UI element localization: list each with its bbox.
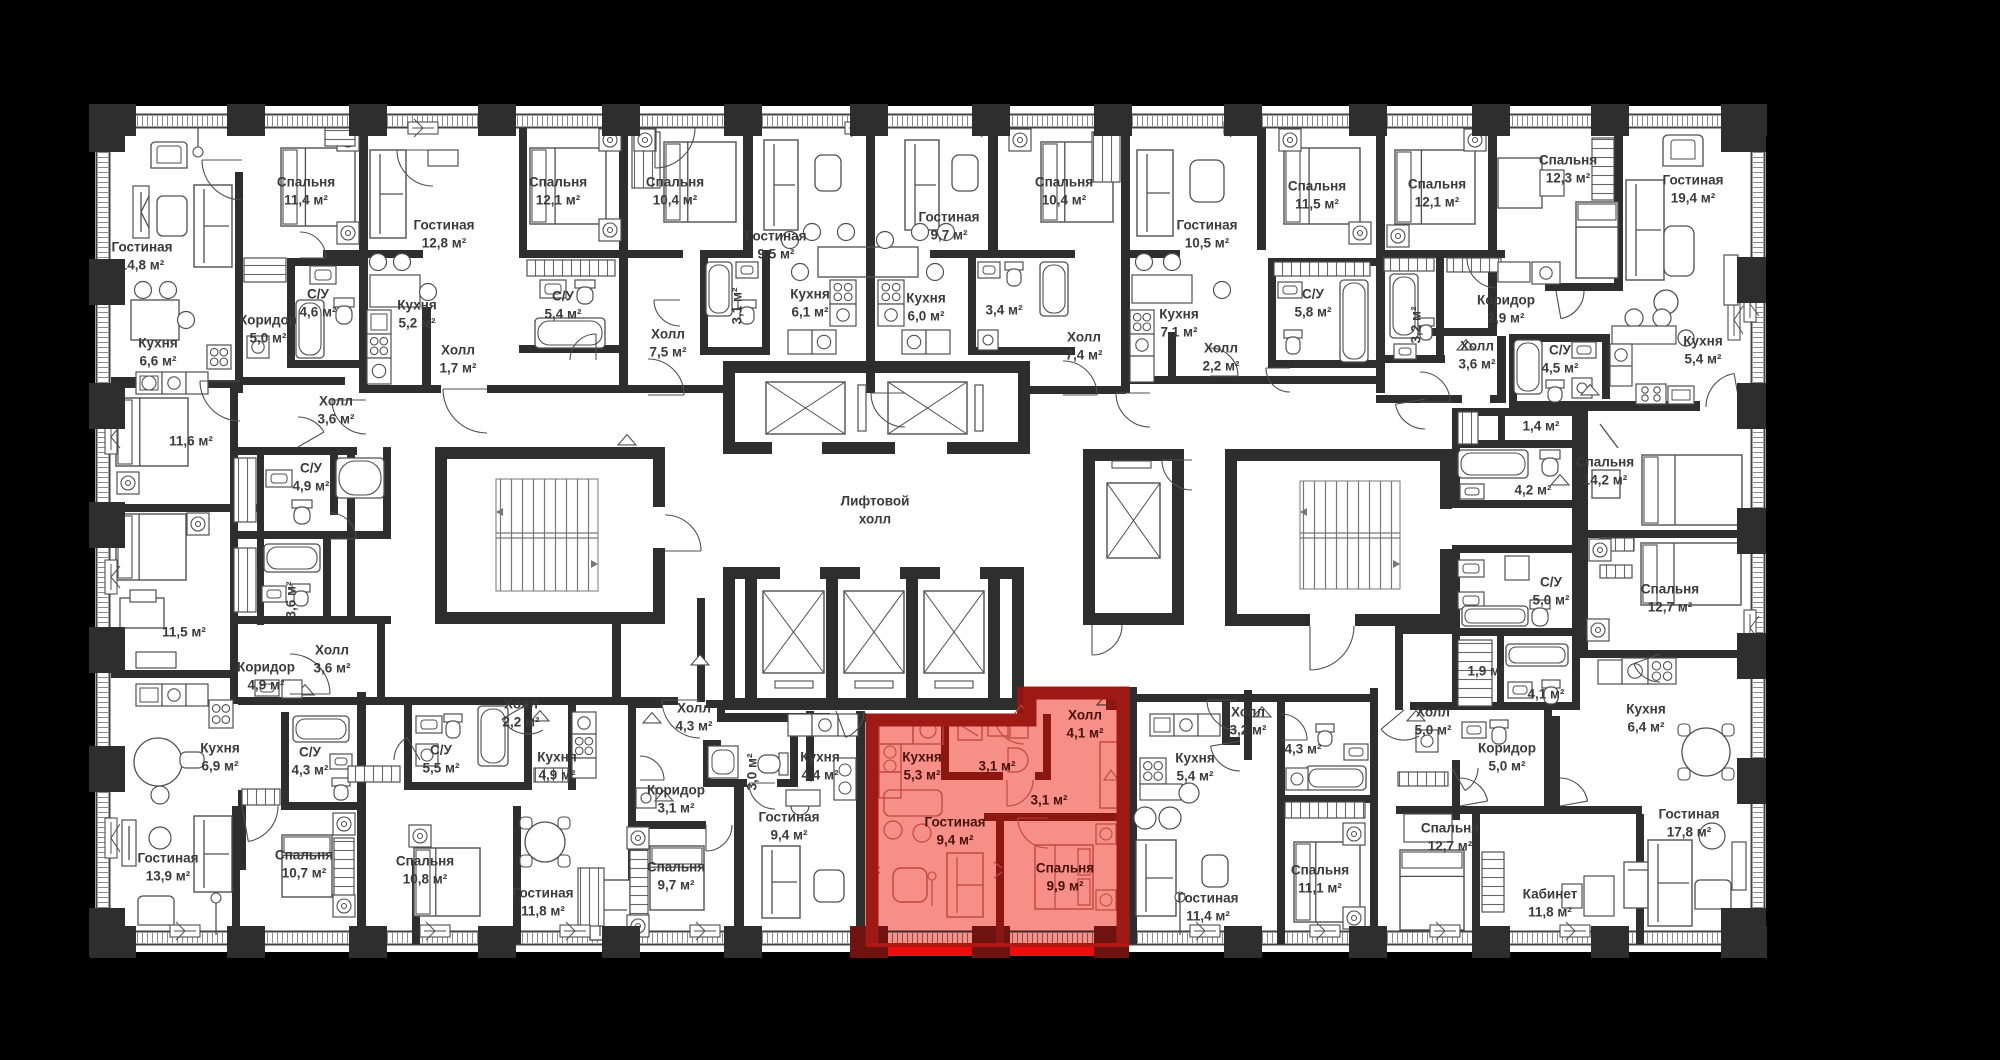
svg-text:11,8 м²: 11,8 м² (1528, 905, 1572, 920)
svg-text:Спальня: Спальня (1036, 861, 1094, 876)
svg-text:Гостиная: Гостиная (512, 886, 573, 901)
svg-text:13,9 м²: 13,9 м² (146, 869, 191, 884)
svg-text:Холл: Холл (315, 643, 349, 658)
svg-text:Холл: Холл (1067, 330, 1101, 345)
svg-text:Холл: Холл (1068, 708, 1102, 723)
svg-text:Коридор: Коридор (1478, 741, 1536, 756)
svg-text:5,4 м²: 5,4 м² (545, 307, 583, 322)
svg-text:3,2 м²: 3,2 м² (1409, 306, 1424, 344)
svg-text:14,2 м²: 14,2 м² (1583, 473, 1628, 488)
svg-text:С/У: С/У (552, 289, 575, 304)
svg-text:12,7 м²: 12,7 м² (1428, 839, 1473, 854)
svg-text:4,9 м²: 4,9 м² (539, 768, 577, 783)
svg-text:3,1 м²: 3,1 м² (979, 759, 1017, 774)
svg-text:Кухня: Кухня (397, 298, 436, 313)
svg-text:9,4 м²: 9,4 м² (771, 828, 809, 843)
svg-text:Спальня: Спальня (1576, 455, 1634, 470)
svg-text:Спальня: Спальня (275, 848, 333, 863)
svg-text:Коридор: Коридор (647, 783, 705, 798)
svg-text:Спальня: Спальня (1291, 863, 1349, 878)
svg-text:1,7 м²: 1,7 м² (440, 361, 478, 376)
svg-text:С/У: С/У (1302, 287, 1325, 302)
svg-text:Кухня: Кухня (902, 750, 941, 765)
svg-text:С/У: С/У (299, 745, 322, 760)
svg-text:Холл: Холл (441, 343, 475, 358)
svg-text:4,1 м²: 4,1 м² (1067, 726, 1105, 741)
svg-text:Кухня: Кухня (790, 287, 829, 302)
svg-text:Гостиная: Гостиная (918, 210, 979, 225)
svg-text:4,5 м²: 4,5 м² (1542, 361, 1580, 376)
svg-text:3,6 м²: 3,6 м² (318, 412, 356, 427)
svg-text:5,2 м²: 5,2 м² (399, 316, 437, 331)
svg-text:4,2 м²: 4,2 м² (1515, 483, 1553, 498)
svg-text:9,9 м²: 9,9 м² (1047, 879, 1085, 894)
svg-text:Гостиная: Гостиная (745, 229, 806, 244)
svg-text:5,0 м²: 5,0 м² (1489, 759, 1527, 774)
svg-text:4,9 м²: 4,9 м² (248, 678, 286, 693)
svg-text:С/У: С/У (1540, 575, 1563, 590)
svg-text:12,1 м²: 12,1 м² (1415, 195, 1460, 210)
svg-text:Кухня: Кухня (138, 336, 177, 351)
svg-text:7,5 м²: 7,5 м² (650, 345, 688, 360)
svg-text:Холл: Холл (504, 697, 538, 712)
svg-text:9,7 м²: 9,7 м² (658, 878, 696, 893)
svg-text:1,4 м²: 1,4 м² (1523, 419, 1561, 434)
svg-text:6,1 м²: 6,1 м² (792, 305, 830, 320)
svg-text:С/У: С/У (300, 461, 323, 476)
svg-text:Спальня: Спальня (647, 860, 705, 875)
svg-text:3,1 м²: 3,1 м² (658, 801, 696, 816)
svg-text:5,4 м²: 5,4 м² (1685, 352, 1723, 367)
svg-text:Гостиная: Гостиная (924, 815, 985, 830)
svg-text:3,2 м²: 3,2 м² (1230, 723, 1268, 738)
svg-text:С/У: С/У (430, 743, 453, 758)
svg-text:5,8 м²: 5,8 м² (1295, 305, 1333, 320)
svg-text:5,0 м²: 5,0 м² (1415, 723, 1453, 738)
svg-text:Спальня: Спальня (1641, 582, 1699, 597)
svg-text:Холл: Холл (1460, 339, 1494, 354)
svg-text:5,4 м²: 5,4 м² (1177, 769, 1215, 784)
svg-text:4,4 м²: 4,4 м² (802, 768, 840, 783)
svg-text:3,0 м²: 3,0 м² (745, 753, 760, 791)
svg-text:Спальня: Спальня (529, 175, 587, 190)
svg-text:Кухня: Кухня (537, 750, 576, 765)
svg-text:4,3 м²: 4,3 м² (1285, 742, 1323, 757)
svg-text:6,6 м²: 6,6 м² (140, 354, 178, 369)
svg-text:6,9 м²: 6,9 м² (202, 759, 240, 774)
svg-text:4,1 м²: 4,1 м² (1528, 687, 1566, 702)
svg-text:Гостиная: Гостиная (137, 851, 198, 866)
svg-text:4,6 м²: 4,6 м² (300, 305, 338, 320)
svg-text:3,6 м²: 3,6 м² (1459, 357, 1497, 372)
svg-text:12,8 м²: 12,8 м² (422, 236, 467, 251)
svg-text:5,3 м²: 5,3 м² (904, 768, 942, 783)
svg-text:11,8 м²: 11,8 м² (521, 904, 565, 919)
svg-text:10,8 м²: 10,8 м² (403, 872, 448, 887)
svg-text:Кухня: Кухня (906, 291, 945, 306)
svg-text:5,5 м²: 5,5 м² (423, 761, 461, 776)
svg-text:10,4 м²: 10,4 м² (653, 193, 698, 208)
svg-text:Кухня: Кухня (1683, 334, 1722, 349)
svg-text:Гостиная: Гостиная (1176, 218, 1237, 233)
svg-text:2,2 м²: 2,2 м² (503, 715, 541, 730)
svg-text:4,9 м²: 4,9 м² (293, 479, 331, 494)
svg-text:Спальня: Спальня (1421, 821, 1479, 836)
svg-text:Холл: Холл (1416, 705, 1450, 720)
svg-text:Кухня: Кухня (800, 750, 839, 765)
svg-text:Гостиная: Гостиная (1662, 173, 1723, 188)
svg-text:Гостиная: Гостиная (758, 810, 819, 825)
svg-text:9,4 м²: 9,4 м² (937, 833, 975, 848)
svg-text:11,5 м²: 11,5 м² (162, 625, 206, 640)
svg-text:12,7 м²: 12,7 м² (1648, 600, 1693, 615)
svg-text:Холл: Холл (1231, 705, 1265, 720)
svg-text:3,1 м²: 3,1 м² (730, 287, 745, 325)
svg-text:Спальня: Спальня (1288, 179, 1346, 194)
svg-text:14,8 м²: 14,8 м² (120, 258, 165, 273)
svg-text:11,4 м²: 11,4 м² (284, 193, 328, 208)
svg-text:1,9 м²: 1,9 м² (1468, 664, 1506, 679)
svg-text:12,3 м²: 12,3 м² (1546, 171, 1591, 186)
svg-text:Спальня: Спальня (1408, 177, 1466, 192)
svg-text:10,5 м²: 10,5 м² (1185, 236, 1230, 251)
svg-text:12,1 м²: 12,1 м² (536, 193, 581, 208)
svg-text:3,1 м²: 3,1 м² (1031, 793, 1069, 808)
svg-text:6,0 м²: 6,0 м² (908, 309, 946, 324)
svg-text:11,1 м²: 11,1 м² (1298, 881, 1342, 896)
svg-text:Кухня: Кухня (1175, 751, 1214, 766)
svg-text:Холл: Холл (319, 394, 353, 409)
svg-text:Кухня: Кухня (1626, 702, 1665, 717)
svg-text:Спальня: Спальня (1035, 175, 1093, 190)
svg-text:Спальня: Спальня (1539, 153, 1597, 168)
svg-text:Коридор: Коридор (237, 660, 295, 675)
svg-text:Холл: Холл (651, 327, 685, 342)
svg-text:11,6 м²: 11,6 м² (169, 434, 213, 449)
svg-text:Коридор: Коридор (239, 313, 297, 328)
svg-text:4,3 м²: 4,3 м² (292, 763, 330, 778)
svg-text:10,7 м²: 10,7 м² (282, 866, 327, 881)
svg-text:Гостиная: Гостиная (1658, 807, 1719, 822)
svg-text:Гостиная: Гостиная (413, 218, 474, 233)
svg-text:Кухня: Кухня (200, 741, 239, 756)
svg-text:Коридор: Коридор (1477, 293, 1535, 308)
svg-text:Кабинет: Кабинет (1523, 887, 1578, 902)
svg-text:Лифтовой: Лифтовой (841, 494, 910, 509)
svg-text:Гостиная: Гостиная (111, 240, 172, 255)
svg-text:7,1 м²: 7,1 м² (1161, 325, 1199, 340)
svg-text:Гостиная: Гостиная (1177, 891, 1238, 906)
svg-text:С/У: С/У (307, 287, 330, 302)
svg-text:9,5 м²: 9,5 м² (758, 247, 796, 262)
svg-text:Спальня: Спальня (396, 854, 454, 869)
svg-text:Холл: Холл (1204, 341, 1238, 356)
svg-text:17,8 м²: 17,8 м² (1667, 825, 1712, 840)
svg-text:Спальня: Спальня (277, 175, 335, 190)
svg-text:3,6 м²: 3,6 м² (284, 581, 299, 619)
svg-text:11,5 м²: 11,5 м² (1295, 197, 1339, 212)
svg-text:С/У: С/У (1549, 343, 1572, 358)
svg-text:3,6 м²: 3,6 м² (314, 661, 352, 676)
svg-text:9,7 м²: 9,7 м² (931, 228, 969, 243)
svg-text:Холл: Холл (677, 701, 711, 716)
svg-text:Кухня: Кухня (1159, 307, 1198, 322)
svg-text:11,4 м²: 11,4 м² (1186, 909, 1230, 924)
svg-text:7,4 м²: 7,4 м² (1066, 348, 1104, 363)
svg-text:2,2 м²: 2,2 м² (1203, 359, 1241, 374)
svg-text:10,4 м²: 10,4 м² (1042, 193, 1087, 208)
svg-text:19,4 м²: 19,4 м² (1671, 191, 1716, 206)
svg-text:5,0 м²: 5,0 м² (1533, 593, 1571, 608)
svg-text:4,3 м²: 4,3 м² (676, 719, 714, 734)
svg-text:3,4 м²: 3,4 м² (986, 303, 1024, 318)
svg-text:5,0 м²: 5,0 м² (250, 331, 288, 346)
svg-text:Спальня: Спальня (646, 175, 704, 190)
svg-text:6,4 м²: 6,4 м² (1628, 720, 1666, 735)
svg-text:2,9 м²: 2,9 м² (1488, 311, 1526, 326)
svg-text:холл: холл (859, 512, 891, 527)
